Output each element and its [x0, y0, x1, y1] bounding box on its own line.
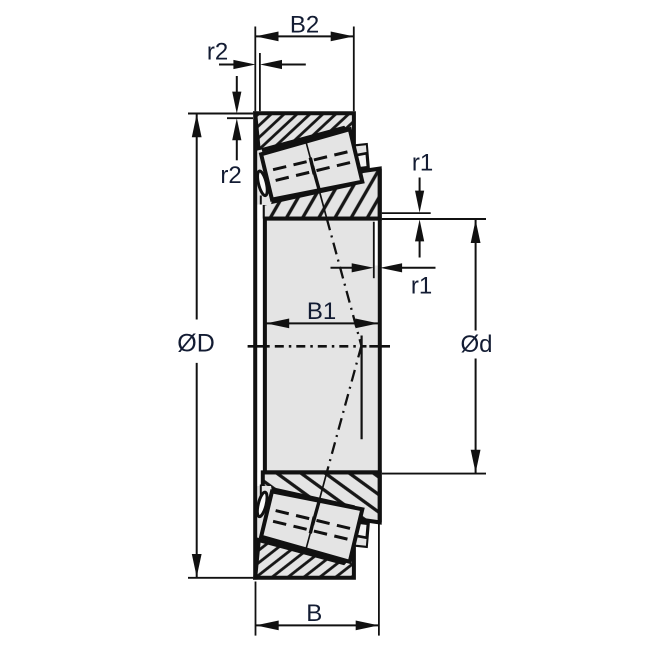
svg-text:r2: r2: [220, 162, 241, 189]
svg-text:B: B: [306, 600, 322, 627]
svg-text:B2: B2: [290, 12, 319, 39]
svg-text:Ød: Ød: [460, 331, 492, 358]
svg-text:ØD: ØD: [177, 330, 215, 358]
svg-text:r1: r1: [411, 273, 432, 300]
svg-text:r1: r1: [412, 149, 433, 176]
svg-text:B1: B1: [307, 298, 336, 325]
svg-text:r2: r2: [207, 39, 228, 66]
